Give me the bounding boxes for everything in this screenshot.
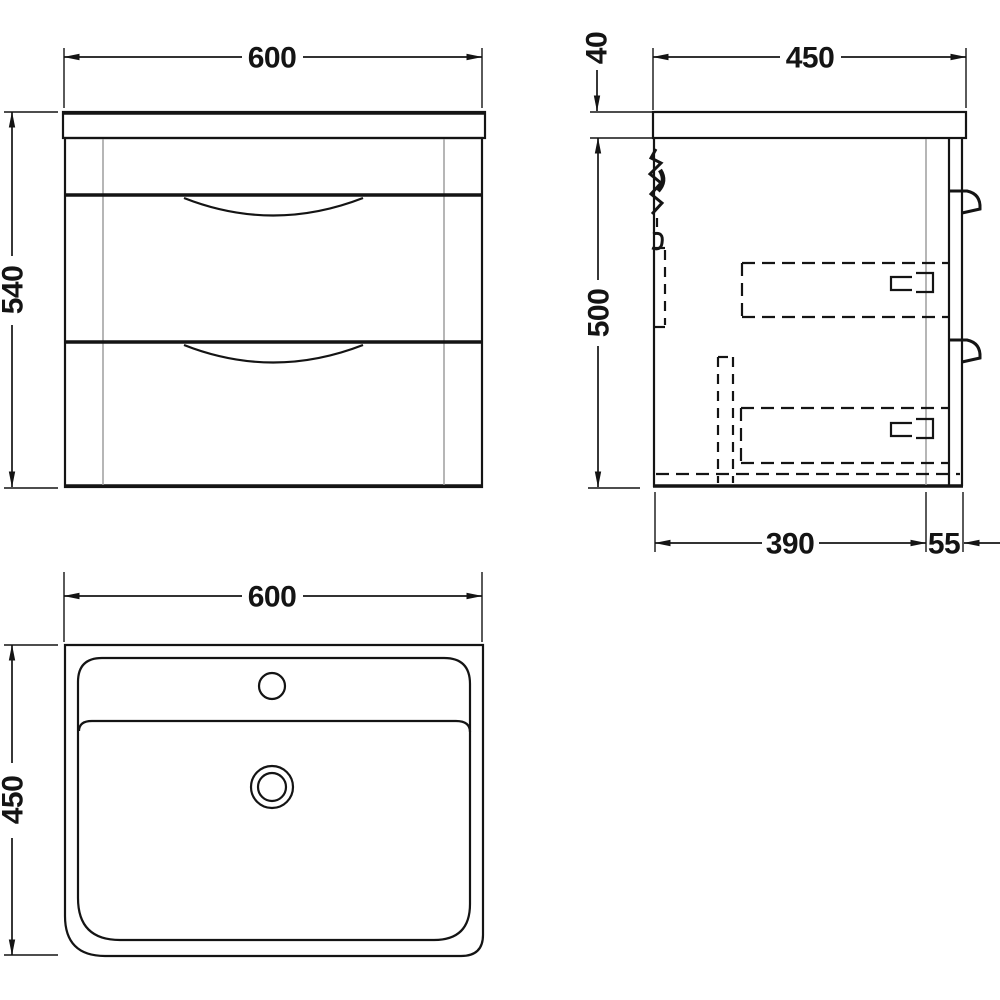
drain-inner-ring <box>258 773 286 801</box>
side-countertop <box>653 112 966 138</box>
front-carcass <box>65 138 482 487</box>
front-width-label: 600 <box>248 42 297 75</box>
technical-drawing-page: 600 540 <box>0 0 1000 1000</box>
plan-depth-dimension: 450 <box>0 645 58 955</box>
front-handle-recess-1 <box>184 198 363 216</box>
side-depth-label: 450 <box>786 42 835 75</box>
side-handle-profile-1 <box>949 191 980 213</box>
side-bottom-depth-label: 390 <box>766 528 815 561</box>
side-carcass-height-label: 500 <box>583 289 616 338</box>
tap-hole <box>259 673 285 699</box>
basin-bowl-back-edge <box>79 721 470 732</box>
wall-bracket-detail <box>650 149 663 249</box>
front-countertop <box>63 112 485 138</box>
basin-inner-rim <box>78 658 470 940</box>
plan-view: 600 450 <box>0 572 483 956</box>
front-height-dimension: 540 <box>0 112 58 488</box>
side-front-offset-label: 55 <box>928 528 960 561</box>
vanity-unit-drawing: 600 540 <box>0 0 1000 1000</box>
upper-drawer-box-hidden <box>742 263 948 317</box>
plan-width-dimension: 600 <box>64 572 482 642</box>
side-bottom-dimensions: 390 55 <box>655 492 1000 561</box>
front-width-dimension: 600 <box>64 42 482 109</box>
waste-trap-hidden <box>718 357 733 483</box>
front-height-label: 540 <box>0 266 30 315</box>
plan-width-label: 600 <box>248 581 297 614</box>
front-handle-recess-2 <box>184 345 363 363</box>
side-handle-profile-2 <box>949 340 980 362</box>
side-top-thickness-label: 40 <box>581 32 614 64</box>
plan-depth-label: 450 <box>0 776 30 825</box>
side-carcass-height-dimension: 500 <box>583 138 641 488</box>
side-top-thickness-dimension: 40 <box>581 32 653 138</box>
side-depth-dimension: 450 <box>653 42 966 111</box>
front-view: 600 540 <box>0 42 486 489</box>
lower-drawer-box-hidden <box>741 408 948 463</box>
side-view: 450 40 500 390 55 <box>581 32 1000 561</box>
